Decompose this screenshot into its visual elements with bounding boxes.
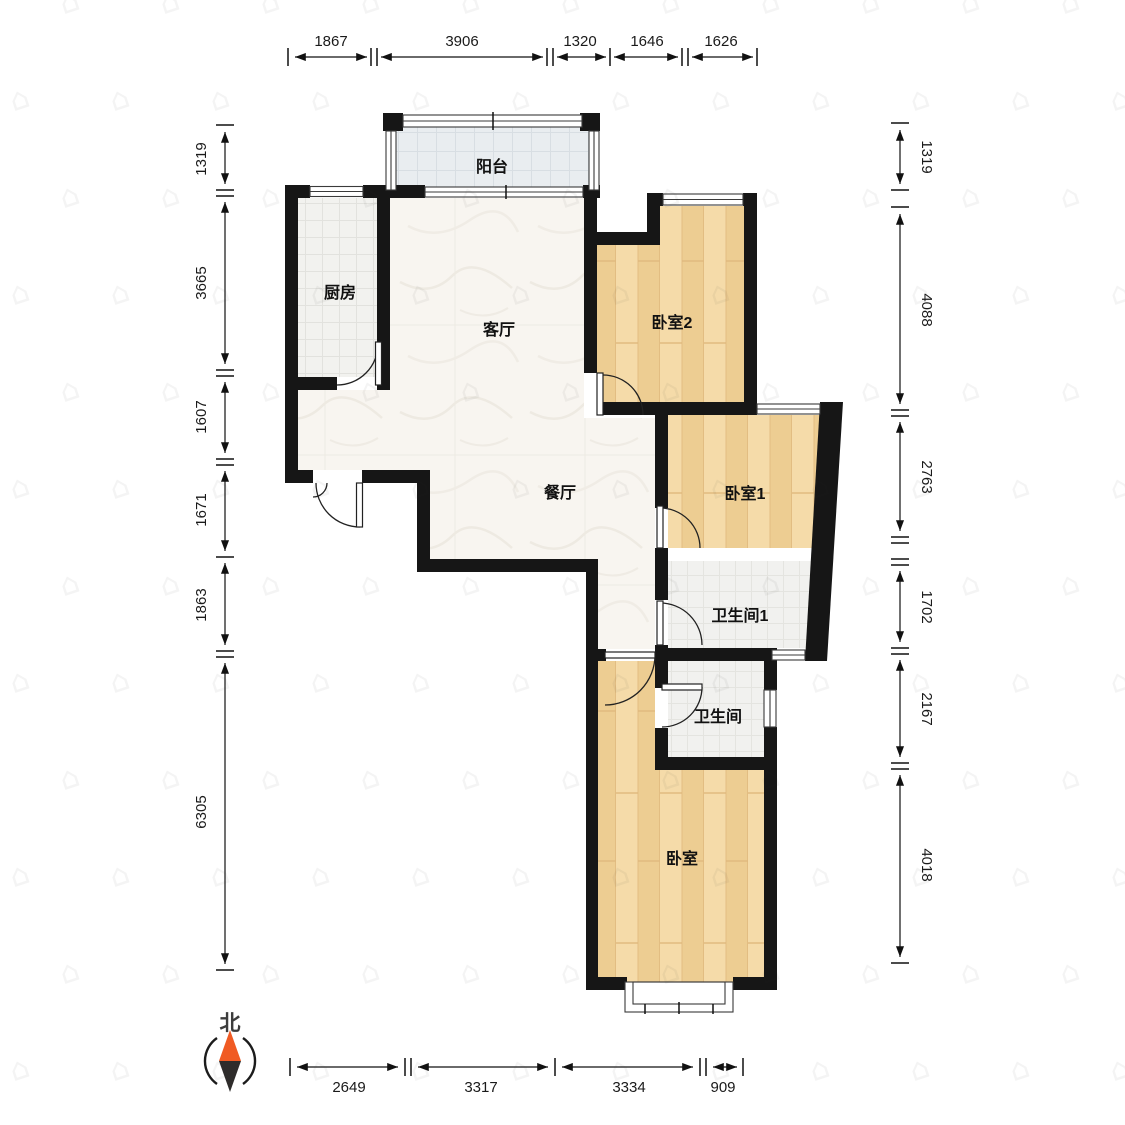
dim-top: 1867 3906 1320 1646 1626 — [288, 33, 757, 66]
bedroom1-window — [757, 404, 820, 414]
label-bedroom1: 卧室1 — [725, 484, 766, 503]
label-balcony: 阳台 — [476, 157, 508, 176]
compass-needle-south — [219, 1061, 241, 1092]
room-floors — [298, 126, 822, 987]
dim-top-1: 3906 — [445, 33, 478, 50]
dim-left-1: 3665 — [193, 266, 210, 299]
dim-right-3: 1702 — [918, 590, 935, 623]
entrance-door — [313, 483, 363, 527]
bathroom1-window — [772, 650, 805, 660]
floor-plan-page: 阳台 厨房 客厅 卧室2 餐厅 卧室1 卫生间1 卫生间 卧室 1867 390… — [0, 0, 1125, 1125]
bathroom1-floor — [668, 561, 812, 648]
bedroom1-floor — [668, 415, 822, 548]
balcony-floor — [396, 126, 589, 190]
dim-left-2: 1607 — [193, 400, 210, 433]
label-bedroom2: 卧室2 — [652, 313, 693, 332]
dim-right: 1319 4088 2763 1702 2167 4018 — [891, 123, 935, 963]
dim-left-3: 1671 — [193, 493, 210, 526]
dim-top-3: 1646 — [630, 33, 663, 50]
label-bathroom1: 卫生间1 — [712, 606, 769, 625]
dim-left-5: 6305 — [193, 795, 210, 828]
dim-right-0: 1319 — [918, 140, 935, 173]
dim-left-0: 1319 — [193, 142, 210, 175]
floor-plan-svg: 阳台 厨房 客厅 卧室2 餐厅 卧室1 卫生间1 卫生间 卧室 1867 390… — [0, 0, 1125, 1125]
dim-right-2: 2763 — [918, 460, 935, 493]
dim-bottom-3: 909 — [710, 1079, 735, 1096]
dim-top-0: 1867 — [314, 33, 347, 50]
dim-bottom-0: 2649 — [332, 1079, 365, 1096]
dim-right-5: 4018 — [918, 848, 935, 881]
label-kitchen: 厨房 — [324, 283, 356, 302]
dim-left: 1319 3665 1607 1671 1863 6305 — [193, 125, 234, 970]
label-living: 客厅 — [483, 320, 515, 339]
bay-window — [625, 982, 733, 1014]
dim-left-4: 1863 — [193, 588, 210, 621]
dim-bottom-1: 3317 — [464, 1079, 497, 1096]
label-bathroom: 卫生间 — [694, 707, 742, 726]
dim-bottom-2: 3334 — [612, 1079, 645, 1096]
dim-bottom: 2649 3317 3334 909 — [290, 1058, 743, 1096]
bedroom2-window — [663, 194, 743, 205]
label-dining: 餐厅 — [543, 483, 576, 502]
label-bedroom: 卧室 — [666, 849, 698, 868]
bathroom-window — [764, 690, 776, 727]
compass: 北 — [205, 1012, 255, 1092]
kitchen-window — [310, 187, 363, 197]
compass-circle — [205, 1038, 217, 1084]
dim-top-4: 1626 — [704, 33, 737, 50]
dim-top-2: 1320 — [563, 33, 596, 50]
dim-right-1: 4088 — [918, 293, 935, 326]
dim-right-4: 2167 — [918, 692, 935, 725]
balcony-sliding-door — [425, 185, 583, 199]
